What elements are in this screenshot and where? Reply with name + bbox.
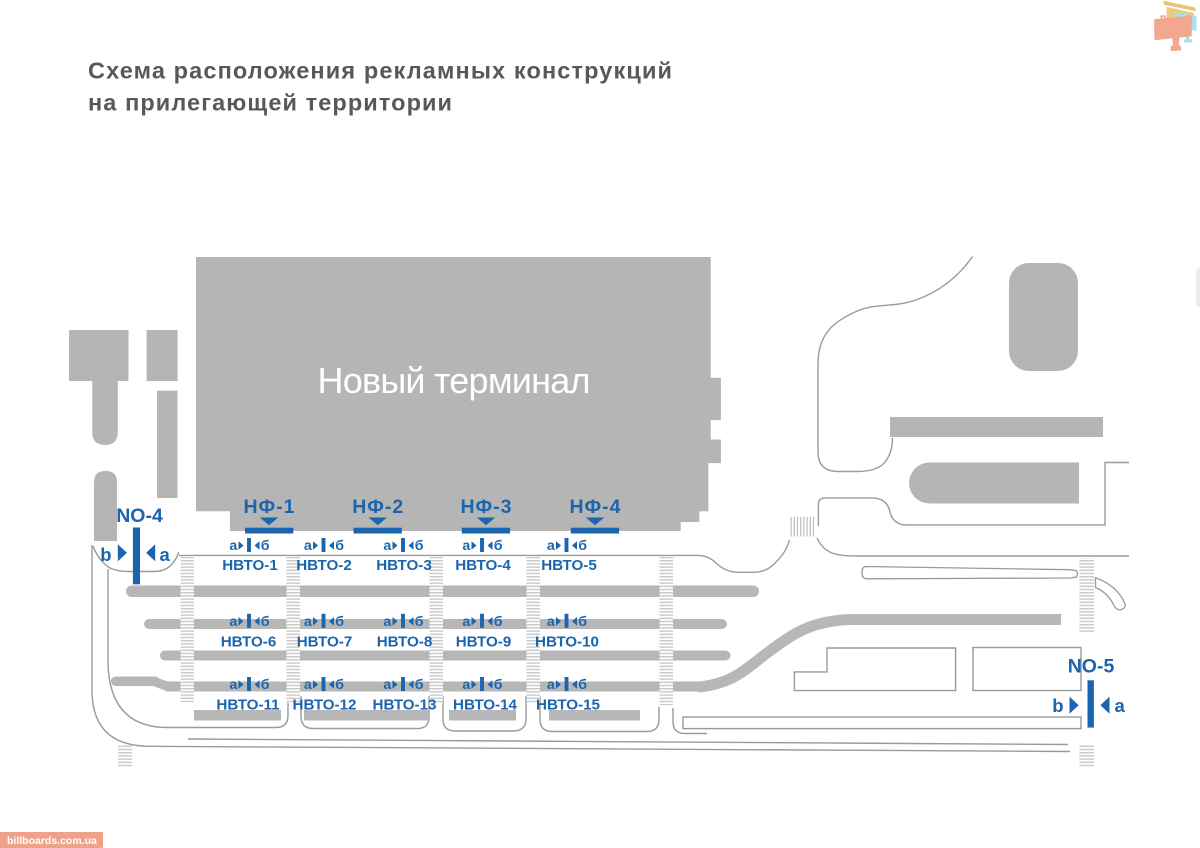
svg-text:a: a [160, 544, 171, 565]
svg-text:НВТО-10: НВТО-10 [535, 634, 599, 651]
svg-text:НФ-4: НФ-4 [570, 496, 621, 518]
svg-text:НВТО-15: НВТО-15 [536, 697, 601, 714]
svg-text:НВТО-9: НВТО-9 [456, 634, 512, 651]
svg-text:НФ-1: НФ-1 [244, 496, 295, 518]
svg-text:НВТО-14: НВТО-14 [453, 697, 518, 714]
svg-text:NO-5: NO-5 [1068, 656, 1115, 678]
svg-text:НВТО-12: НВТО-12 [292, 697, 356, 714]
svg-text:NO-4: NO-4 [116, 505, 163, 527]
svg-text:b: b [1052, 695, 1063, 716]
svg-text:НФ-3: НФ-3 [461, 496, 512, 518]
svg-text:Новый терминал: Новый терминал [318, 360, 591, 401]
svg-text:НВТО-5: НВТО-5 [541, 557, 597, 574]
svg-text:НВТО-6: НВТО-6 [221, 634, 277, 651]
svg-text:НВТО-7: НВТО-7 [297, 634, 353, 651]
svg-text:billboards.com.ua: billboards.com.ua [7, 835, 97, 847]
svg-text:НВТО-4: НВТО-4 [455, 557, 511, 574]
svg-text:на прилегающей территории: на прилегающей территории [88, 90, 452, 116]
svg-text:a: a [1115, 695, 1126, 716]
svg-text:НВТО-2: НВТО-2 [296, 557, 352, 574]
svg-text:Схема расположения рекламных к: Схема расположения рекламных конструкций [88, 58, 672, 84]
svg-text:НВТО-8: НВТО-8 [377, 634, 433, 651]
svg-text:НВТО-11: НВТО-11 [216, 697, 280, 714]
svg-text:НВТО-1: НВТО-1 [222, 557, 278, 574]
svg-text:НФ-2: НФ-2 [352, 496, 403, 518]
svg-text:НВТО-13: НВТО-13 [372, 697, 436, 714]
svg-text:b: b [100, 544, 111, 565]
svg-text:НВТО-3: НВТО-3 [376, 557, 432, 574]
